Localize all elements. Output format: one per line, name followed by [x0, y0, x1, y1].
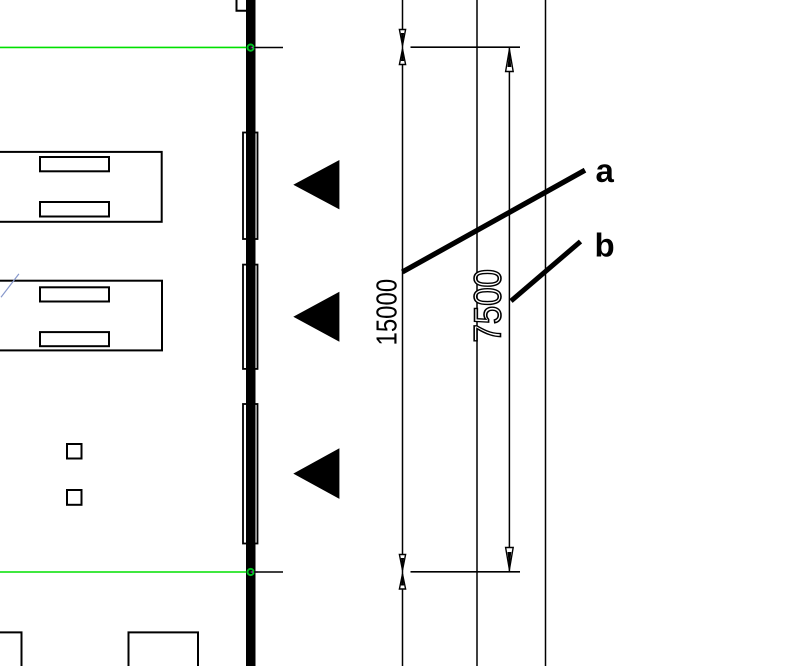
- svg-text:a: a: [596, 152, 615, 189]
- svg-text:15000: 15000: [370, 279, 403, 346]
- svg-text:b: b: [595, 227, 615, 264]
- svg-text:7500: 7500: [466, 269, 509, 342]
